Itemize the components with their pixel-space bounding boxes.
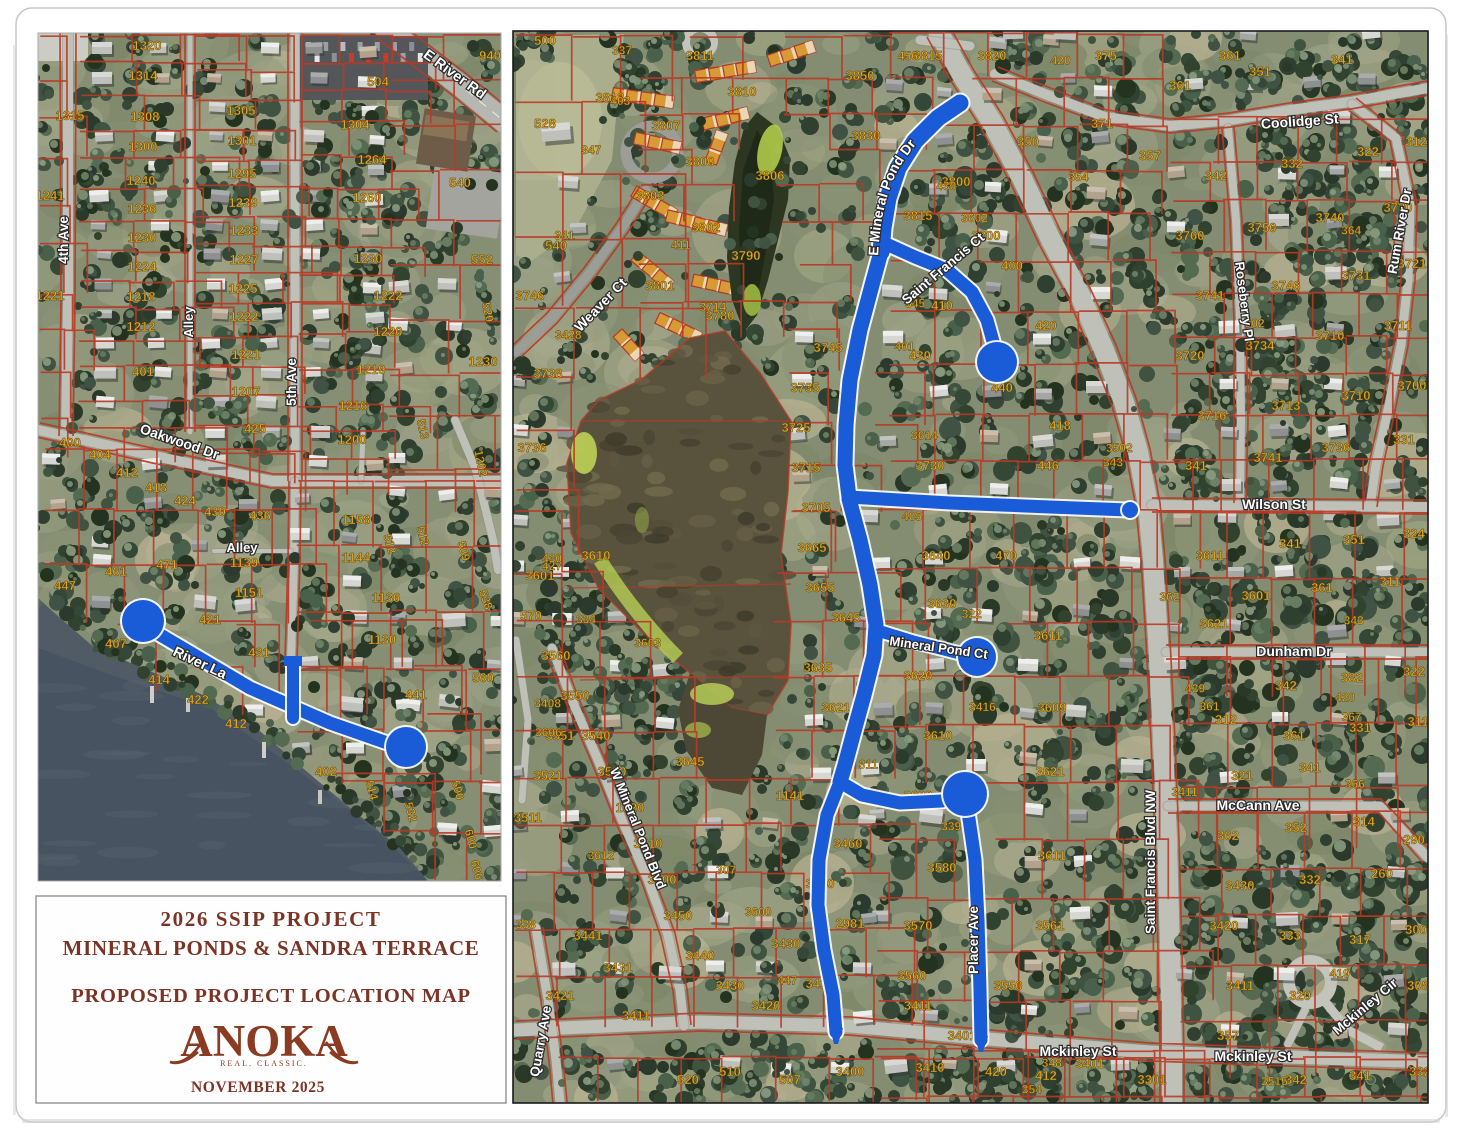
- svg-text:1221: 1221: [232, 347, 261, 362]
- svg-text:425: 425: [244, 421, 266, 436]
- svg-text:Alley: Alley: [181, 306, 196, 338]
- svg-text:461: 461: [105, 564, 127, 579]
- svg-text:422: 422: [187, 692, 209, 707]
- svg-text:441: 441: [405, 687, 427, 702]
- svg-text:1158: 1158: [342, 512, 370, 527]
- svg-text:1221: 1221: [36, 288, 65, 303]
- svg-text:412: 412: [116, 465, 138, 480]
- svg-text:1220: 1220: [374, 324, 403, 339]
- svg-text:402: 402: [315, 764, 337, 779]
- svg-text:1300: 1300: [129, 139, 158, 154]
- svg-text:424: 424: [174, 493, 196, 508]
- svg-text:431: 431: [248, 645, 270, 660]
- svg-text:1212: 1212: [127, 319, 156, 334]
- svg-text:1295: 1295: [228, 166, 257, 181]
- svg-text:1230: 1230: [128, 230, 157, 245]
- svg-text:436: 436: [249, 508, 271, 523]
- svg-text:4th Ave: 4th Ave: [56, 216, 71, 264]
- svg-text:552: 552: [471, 252, 493, 267]
- svg-text:1304: 1304: [341, 117, 371, 132]
- svg-text:1260: 1260: [353, 190, 382, 205]
- svg-text:1224: 1224: [128, 259, 158, 274]
- svg-text:1151: 1151: [235, 585, 263, 600]
- svg-text:Alley: Alley: [226, 540, 258, 555]
- svg-text:1230: 1230: [469, 354, 498, 369]
- svg-text:414: 414: [148, 672, 170, 687]
- svg-text:430: 430: [204, 504, 226, 519]
- svg-text:504: 504: [367, 74, 389, 89]
- svg-text:1230: 1230: [354, 251, 383, 266]
- svg-text:1320: 1320: [133, 38, 162, 53]
- svg-text:401: 401: [132, 364, 154, 379]
- svg-text:1216: 1216: [339, 398, 368, 413]
- svg-text:412: 412: [225, 716, 247, 731]
- svg-text:1314: 1314: [129, 68, 159, 83]
- svg-text:540: 540: [449, 175, 471, 190]
- svg-text:560: 560: [472, 670, 494, 685]
- svg-text:471: 471: [156, 557, 178, 572]
- svg-text:1136: 1136: [372, 590, 400, 605]
- svg-text:1236: 1236: [128, 201, 157, 216]
- svg-text:1264: 1264: [358, 152, 388, 167]
- svg-text:1222: 1222: [374, 288, 403, 303]
- svg-text:1241: 1241: [36, 188, 65, 203]
- svg-text:1144: 1144: [342, 550, 371, 565]
- svg-text:1219: 1219: [357, 362, 386, 377]
- svg-text:1239: 1239: [229, 195, 258, 210]
- svg-text:1225: 1225: [229, 281, 258, 296]
- svg-text:1315: 1315: [56, 108, 85, 123]
- svg-text:1139: 1139: [230, 555, 258, 570]
- svg-text:1207: 1207: [232, 384, 261, 399]
- svg-text:400: 400: [59, 435, 81, 450]
- svg-text:404: 404: [89, 447, 111, 462]
- svg-text:407: 407: [105, 636, 127, 651]
- svg-text:1200: 1200: [338, 432, 367, 447]
- svg-text:5th Ave: 5th Ave: [284, 358, 299, 406]
- svg-text:447: 447: [54, 578, 76, 593]
- svg-text:940: 940: [479, 48, 501, 63]
- svg-text:1305: 1305: [227, 103, 256, 118]
- svg-text:1218: 1218: [127, 289, 156, 304]
- svg-text:421: 421: [199, 612, 221, 627]
- svg-text:1130: 1130: [368, 632, 396, 647]
- svg-text:1227: 1227: [230, 252, 259, 267]
- svg-text:418: 418: [145, 480, 167, 495]
- svg-text:1233: 1233: [230, 223, 259, 238]
- svg-text:1301: 1301: [228, 133, 257, 148]
- svg-text:1222: 1222: [230, 309, 259, 324]
- svg-text:1308: 1308: [131, 109, 160, 124]
- svg-text:1240: 1240: [127, 173, 156, 188]
